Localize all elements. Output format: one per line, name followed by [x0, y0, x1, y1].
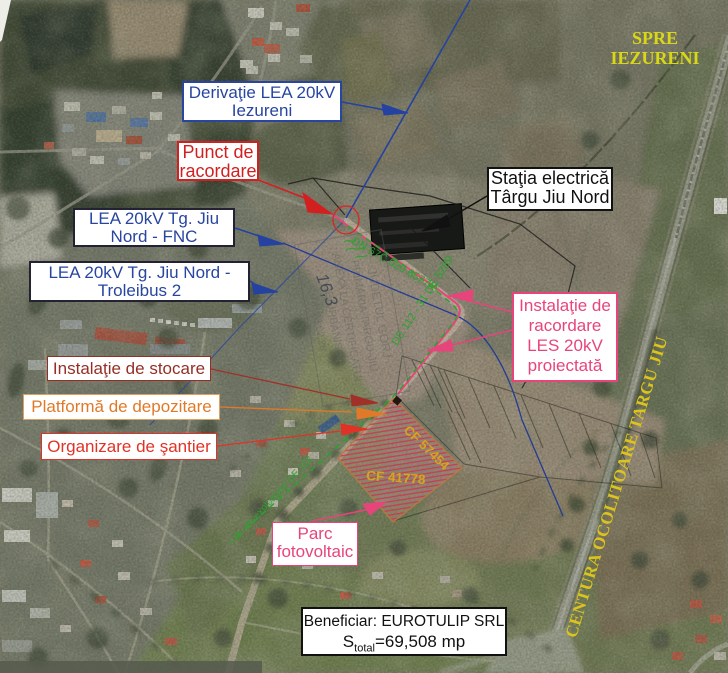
svg-text:SPRE: SPRE	[632, 28, 678, 48]
svg-text:IEZURENI: IEZURENI	[610, 48, 699, 68]
